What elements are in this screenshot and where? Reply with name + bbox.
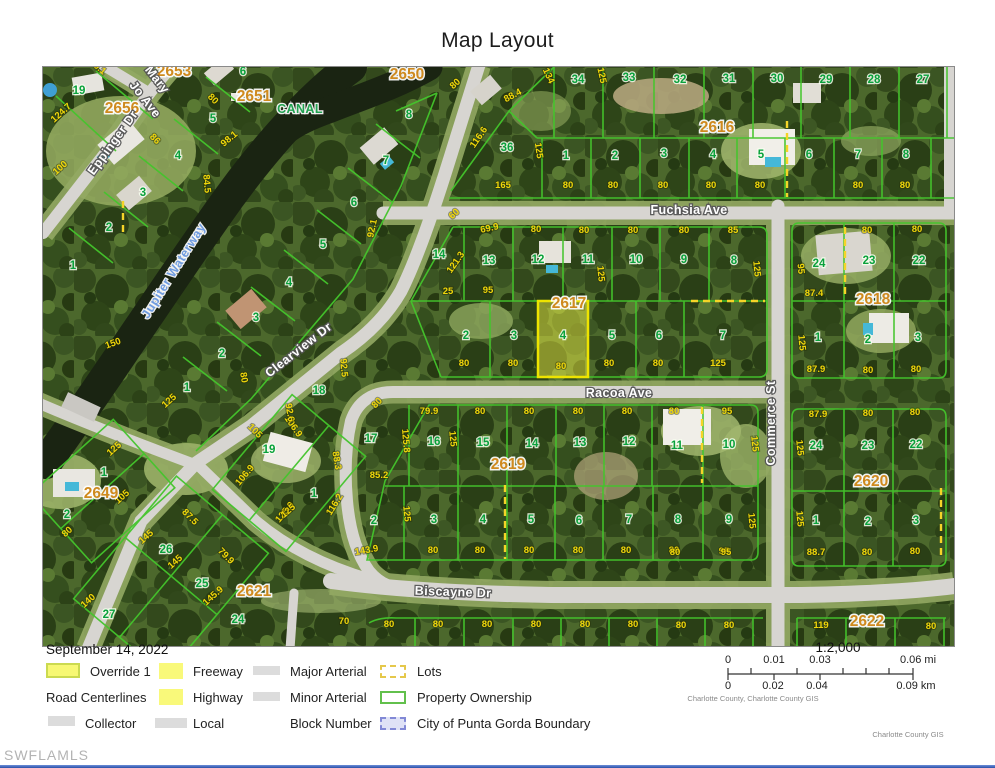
parcel-number: 2 [219,348,225,360]
scale-mi-tick: 0.06 mi [900,654,936,666]
street-name: CANAL [277,102,323,116]
lot-dimension-label: 80 [579,225,590,236]
pond [43,83,57,97]
lot-dimension-label: 25 [443,286,454,297]
parcel-number: 24 [232,614,245,626]
lot-dimension-label: 80 [524,545,535,556]
parcel-number: 4 [480,514,487,526]
road-stub [290,593,294,646]
parcel-number: 3 [140,187,146,199]
lot-dimension-label: 80 [604,358,615,369]
lot-dimension-label: 125 [400,505,412,522]
legend-label-lots: Lots [417,664,442,679]
parcel-number: 14 [433,249,446,261]
parcel-number: 3 [913,515,919,527]
lot-dimension-label: 87.4 [805,288,824,299]
lot-dimension-label: 125 [532,142,545,160]
parcel-number: 19 [263,444,276,456]
lot-dimension-label: 80 [428,545,439,556]
parcel-number: 2 [865,334,871,346]
parcel-number: 17 [365,433,378,445]
lot-dimension-label: 85.2 [370,470,389,481]
legend-label-highway: Highway [193,690,243,705]
lot-dimension-label: 80 [531,619,542,630]
lot-dimension-label: 80 [459,358,470,369]
parcel-number: 2 [463,330,469,342]
parcel-number: 12 [532,254,545,266]
parcel-number: 5 [320,239,327,251]
lot-dimension-label: 80 [926,621,937,632]
map-credits: Charlotte County, Charlotte County GIS [687,694,818,703]
parcel-number: 2 [64,509,70,521]
parcel-number: 36 [501,142,514,154]
parcel-number: 34 [572,74,585,86]
lot-dimension-label: 80 [706,180,717,191]
parcel-number: 19 [73,85,86,97]
lot-dimension-label: 80 [669,406,680,417]
lot-dimension-label: 125 [793,439,805,456]
parcel-number: 10 [723,439,736,451]
parcel-number: 24 [810,440,823,452]
parcel-number: 3 [511,330,517,342]
lot-dimension-label: 80 [911,364,922,375]
parcel-number: 33 [623,72,636,84]
swflamls-watermark: SWFLAMLS [4,747,89,763]
lot-dimension-label: 80 [531,224,542,235]
lot-dimension-label: 80 [621,545,632,556]
parcel-number: 23 [863,255,876,267]
lot-dimension-label: 80 [670,547,681,558]
parcel-number: 5 [210,113,217,125]
block-number: 2649 [84,485,119,502]
lot-dimension-label: 125 [745,512,757,529]
parcel-number: 31 [723,73,736,85]
lot-dimension-label: 125 [793,510,805,527]
lot-dimension-label: 80 [910,546,921,557]
parcel-number: 32 [674,74,687,86]
block-number: 2621 [237,583,272,600]
legend-swatch-freeway [159,663,183,679]
parcel-number: 7 [626,514,632,526]
scale-km-tick: 0.09 km [896,680,935,692]
parcel-number: 13 [483,255,496,267]
scale-km-tick: 0.02 [762,680,783,692]
scale-ratio: 1:2,000 [815,640,860,655]
lot-dimension-label: 80 [658,180,669,191]
parcel-number: 1 [184,382,191,394]
parcel-number: 3 [431,514,437,526]
street-name: Biscayne Dr [415,584,492,601]
lot-dimension-label: 80 [853,180,864,191]
street-name: Fuchsia Ave [650,203,727,217]
lot-dimension-label: 125 [748,435,760,452]
legend-swatch-collector [48,716,75,726]
parcel-number: 4 [286,277,293,289]
parcel-number: 13 [574,437,587,449]
parcel-number: 14 [526,438,539,450]
parcel-number: 9 [681,254,687,266]
parcel-number: 8 [675,514,682,526]
parcel-number: 2 [371,515,377,527]
scale-km-tick: 0.04 [806,680,827,692]
lot-dimension-label: 80 [628,225,639,236]
lot-dimension-label: 80 [563,180,574,191]
parcel-number: 30 [771,73,784,85]
lot-dimension-label: 125 [795,334,807,351]
lot-dimension-label: 80 [384,619,395,630]
parcel-number: 3 [661,148,667,160]
parcel-number: 6 [240,67,246,78]
block-number: 2651 [237,88,272,105]
parcel-number: 6 [806,149,812,161]
parcel-number: 5 [609,330,616,342]
lot-dimension-label: 125.8 [399,428,412,453]
parcel-number: 1 [815,332,822,344]
parcel-number: 4 [560,330,567,342]
legend-label-road-centerlines: Road Centerlines [46,690,146,705]
legend-swatch-local [155,718,187,728]
parcel-number: 2 [865,516,871,528]
legend-label-freeway: Freeway [193,664,243,679]
legend-label-local: Local [193,716,224,731]
lot-dimension-label: 80 [676,620,687,631]
lot-dimension-label: 80 [475,406,486,417]
lot-dimension-label: 80 [628,619,639,630]
lot-dimension-label: 80 [573,545,584,556]
block-number: 2650 [390,67,424,83]
parcel-number: 4 [175,150,182,162]
lot-dimension-label: 87.9 [807,364,826,375]
lot-dimension-label: 125 [594,265,606,282]
lot-dimension-label: 119 [813,620,828,631]
parcel-number: 27 [917,74,930,86]
lot-dimension-label: 80 [862,225,873,236]
map-canvas: 80.1124.78010098.184.5861501258092.58088… [42,66,955,647]
scale-mi-tick: 0 [725,654,731,666]
lot-dimension-label: 125 [710,358,727,369]
lot-dimension-label: 80 [608,180,619,191]
lot-dimension-label: 80 [862,547,873,558]
lot-dimension-label: 80 [724,620,735,631]
lot-dimension-label: 125 [750,260,762,277]
lot-dimension-label: 80 [524,406,535,417]
parcel-number: 1 [813,515,820,527]
street-name: Commerce St [764,380,778,465]
lot-dimension-label: 87.9 [809,409,828,420]
block-number: 2617 [552,295,586,312]
parcel-number: 29 [820,74,833,86]
scale-mi-tick: 0.01 [763,654,784,666]
block-number: 2620 [854,473,888,490]
lot-dimension-label: 80 [573,406,584,417]
parcel-number: 11 [671,440,684,452]
parcel-number: 8 [903,149,910,161]
lot-dimension-label: 84.5 [200,174,213,194]
lot-dimension-label: 80 [580,619,591,630]
lot-dimension-label: 92.5 [337,358,350,378]
map-image: 80.1124.78010098.184.5861501258092.58088… [43,67,954,646]
lot-dimension-label: 95 [795,263,807,275]
lot-dimension-label: 79.9 [420,406,439,417]
legend-label-block-number: Block Number [290,716,372,731]
parcel-number: 3 [915,332,921,344]
lot-dimension-label: 95 [721,547,732,558]
parcel-number: 4 [710,149,717,161]
legend-swatch-minor-arterial [253,692,280,701]
parcel-number: 16 [428,436,441,448]
legend-label-minor-arterial: Minor Arterial [290,690,367,705]
parcel-number: 7 [855,149,861,161]
parcel-number: 27 [103,609,116,621]
parcel-number: 22 [910,439,923,451]
map-layout-page: Map Layout [0,0,995,768]
lot-dimension-label: 80 [653,358,664,369]
parcel-number: 23 [862,440,875,452]
page-title: Map Layout [0,29,995,53]
lot-dimension-label: 125 [446,430,458,447]
parcel-number: 12 [623,436,636,448]
lot-dimension-label: 70 [339,616,350,627]
lot-dimension-label: 165 [495,180,512,191]
lot-dimension-label: 80 [482,619,493,630]
parcel-number: 8 [406,109,413,121]
scale-km-tick: 0 [725,680,731,692]
parcel-number: 26 [160,544,173,556]
lot-dimension-label: 80 [900,180,911,191]
legend-label-collector: Collector [85,716,136,731]
parcel-number: 1 [563,150,570,162]
parcel-number: 28 [868,74,881,86]
street-name: Racoa Ave [586,386,653,400]
lot-dimension-label: 80 [237,371,250,383]
scale-mi-tick: 0.03 [809,654,830,666]
parcel-number: 1 [70,260,77,272]
parcel-number: 25 [196,578,209,590]
block-number: 2622 [850,613,884,630]
parcel-number: 6 [576,515,582,527]
parcel-number: 2 [612,150,618,162]
legend-swatch-highway [159,689,183,705]
legend-swatch-city-boundary [380,717,406,730]
legend-swatch-major-arterial [253,666,280,675]
legend-label-override1: Override 1 [90,664,151,679]
parcel-number: 9 [726,514,732,526]
parcel-number: 8 [731,255,738,267]
parcel-number: 3 [253,312,259,324]
legend-swatch-property-ownership [380,691,406,704]
lot-dimension-label: 80 [622,406,633,417]
parcel-number: 7 [383,155,389,167]
parcel-number: 18 [313,385,326,397]
lot-dimension-label: 80 [912,224,923,235]
parcel-number: 24 [813,258,826,270]
legend-label-major-arterial: Major Arterial [290,664,367,679]
lot-dimension-label: 88.7 [807,547,826,558]
parcel-number: 6 [351,197,357,209]
parcel-number: 7 [720,330,726,342]
legend-label-city-boundary: City of Punta Gorda Boundary [417,716,590,731]
lot-dimension-label: 80 [679,225,690,236]
parcel-number: 11 [582,254,595,266]
lot-dimension-label: 85 [728,225,739,236]
lot-dimension-label: 80 [910,407,921,418]
block-number: 2619 [491,456,526,473]
parcel-number: 2 [106,222,112,234]
legend-swatch-override1 [46,663,80,678]
block-number: 2618 [856,291,891,308]
parcel-number: 5 [758,149,765,161]
parcel-number: 1 [311,488,318,500]
lot-dimension-label: 80 [475,545,486,556]
map-date: September 14, 2022 [46,642,168,657]
lot-dimension-label: 95 [722,406,733,417]
map-credits-2: Charlotte County GIS [872,730,943,739]
legend-label-property-ownership: Property Ownership [417,690,532,705]
parcel-number: 22 [913,255,926,267]
block-number: 2616 [700,119,735,136]
lot-dimension-label: 80 [863,408,874,419]
lot-dimension-label: 95 [483,285,494,296]
lot-dimension-label: 80 [508,358,519,369]
lot-dimension-label: 80 [433,619,444,630]
parcel-number: 15 [477,437,490,449]
parcel-number: 5 [528,514,535,526]
legend-swatch-lots [380,665,406,678]
lot-dimension-label: 80 [863,365,874,376]
lot-dimension-label: 80 [556,361,567,372]
parcel-number: 6 [656,330,662,342]
parcel-number: 1 [101,467,108,479]
lot-dimension-label: 80 [755,180,766,191]
parcel-number: 10 [630,254,643,266]
